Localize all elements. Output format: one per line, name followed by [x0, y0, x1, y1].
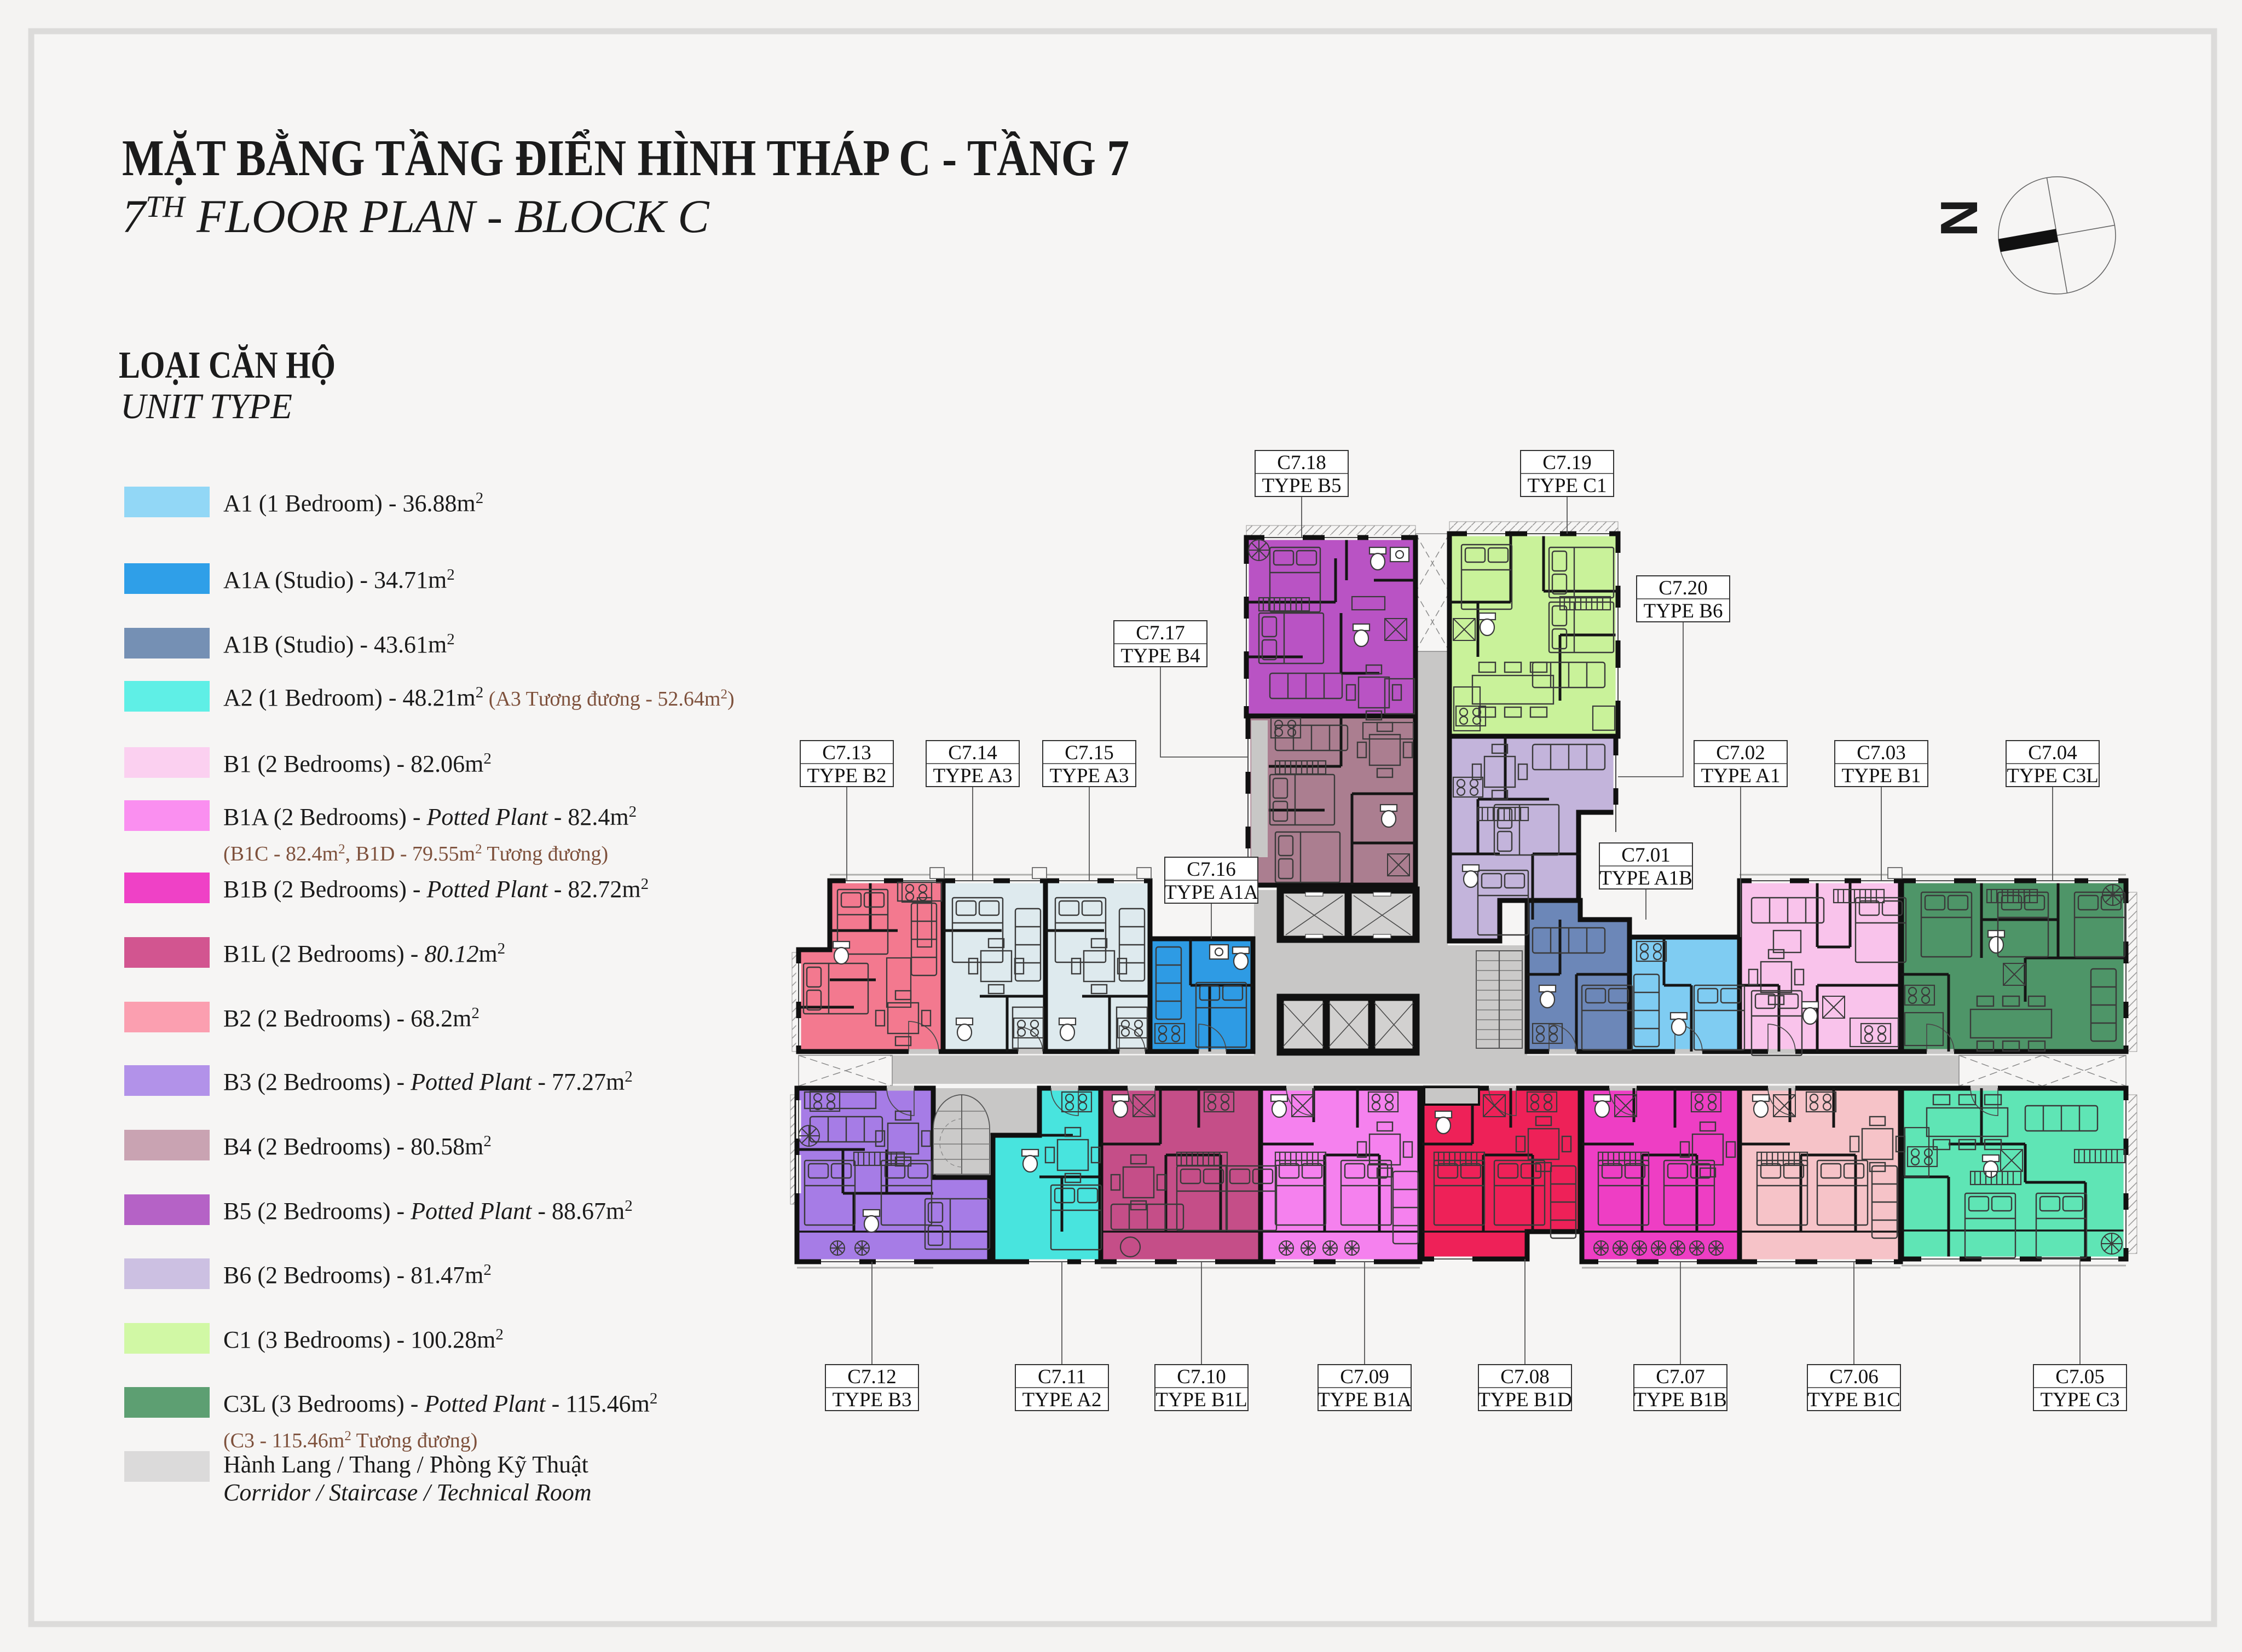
- svg-text:TYPE A3: TYPE A3: [933, 765, 1013, 787]
- svg-text:TYPE B3: TYPE B3: [833, 1389, 912, 1411]
- svg-text:C1 (3 Bedrooms) - 100.28m2: C1 (3 Bedrooms) - 100.28m2: [223, 1326, 504, 1353]
- svg-text:B2 (2 Bedrooms) - 68.2m2: B2 (2 Bedrooms) - 68.2m2: [223, 1004, 479, 1032]
- svg-text:MẶT BẰNG TẦNG ĐIỂN HÌNH THÁP C: MẶT BẰNG TẦNG ĐIỂN HÌNH THÁP C - TẦNG 7: [122, 130, 1129, 187]
- svg-text:A1 (1 Bedroom) - 36.88m2: A1 (1 Bedroom) - 36.88m2: [223, 489, 483, 517]
- svg-text:C7.20: C7.20: [1659, 577, 1707, 599]
- svg-text:B5 (2 Bedrooms) - Potted Plant: B5 (2 Bedrooms) - Potted Plant - 88.67m2: [223, 1197, 633, 1224]
- svg-text:TYPE B1B: TYPE B1B: [1634, 1389, 1727, 1411]
- svg-text:C7.04: C7.04: [2028, 742, 2077, 764]
- svg-text:C7.18: C7.18: [1277, 452, 1326, 474]
- svg-text:UNIT TYPE: UNIT TYPE: [120, 386, 292, 426]
- svg-text:TYPE B1L: TYPE B1L: [1155, 1389, 1247, 1411]
- svg-text:7TH FLOOR PLAN - BLOCK C: 7TH FLOOR PLAN - BLOCK C: [122, 190, 710, 242]
- svg-text:B3 (2 Bedrooms) - Potted Plant: B3 (2 Bedrooms) - Potted Plant - 77.27m2: [223, 1068, 633, 1095]
- svg-text:C7.02: C7.02: [1716, 742, 1765, 764]
- svg-text:TYPE A1B: TYPE A1B: [1599, 867, 1692, 889]
- svg-text:TYPE B1D: TYPE B1D: [1478, 1389, 1572, 1411]
- svg-text:C7.03: C7.03: [1857, 742, 1905, 764]
- svg-text:C7.14: C7.14: [948, 742, 997, 764]
- svg-text:LOẠI CĂN HỘ: LOẠI CĂN HỘ: [119, 344, 336, 386]
- svg-text:C7.17: C7.17: [1136, 622, 1184, 644]
- svg-text:C7.06: C7.06: [1829, 1366, 1878, 1388]
- svg-text:C7.12: C7.12: [847, 1366, 896, 1388]
- svg-text:TYPE A1: TYPE A1: [1701, 765, 1781, 787]
- svg-text:A1A (Studio) - 34.71m2: A1A (Studio) - 34.71m2: [223, 566, 455, 593]
- svg-text:A1B (Studio) - 43.61m2: A1B (Studio) - 43.61m2: [223, 631, 455, 658]
- svg-text:C7.15: C7.15: [1065, 742, 1113, 764]
- svg-text:TYPE B1C: TYPE B1C: [1807, 1389, 1900, 1411]
- svg-text:B1B (2 Bedrooms) - Potted Plan: B1B (2 Bedrooms) - Potted Plant - 82.72m…: [223, 875, 649, 903]
- svg-text:C7.01: C7.01: [1621, 844, 1670, 867]
- svg-text:TYPE C1: TYPE C1: [1528, 475, 1607, 497]
- svg-text:B4 (2 Bedrooms) - 80.58m2: B4 (2 Bedrooms) - 80.58m2: [223, 1133, 492, 1160]
- svg-text:TYPE A3: TYPE A3: [1050, 765, 1129, 787]
- svg-text:C7.19: C7.19: [1542, 452, 1591, 474]
- svg-text:C7.07: C7.07: [1656, 1366, 1704, 1388]
- svg-text:C7.11: C7.11: [1038, 1366, 1086, 1388]
- svg-text:TYPE B1: TYPE B1: [1842, 765, 1921, 787]
- svg-text:C7.08: C7.08: [1500, 1366, 1549, 1388]
- svg-text:TYPE B5: TYPE B5: [1262, 475, 1342, 497]
- svg-text:N: N: [1930, 199, 1989, 236]
- svg-text:TYPE B4: TYPE B4: [1121, 645, 1200, 667]
- svg-text:TYPE C3: TYPE C3: [2041, 1389, 2120, 1411]
- svg-text:C7.13: C7.13: [822, 742, 871, 764]
- svg-text:TYPE B1A: TYPE B1A: [1318, 1389, 1412, 1411]
- svg-text:B1A (2 Bedrooms) - Potted Plan: B1A (2 Bedrooms) - Potted Plant - 82.4m2: [223, 803, 637, 830]
- svg-text:TYPE B6: TYPE B6: [1644, 600, 1723, 622]
- svg-text:TYPE A2: TYPE A2: [1022, 1389, 1102, 1411]
- svg-text:(B1C - 82.4m2, B1D - 79.55m2 T: (B1C - 82.4m2, B1D - 79.55m2 Tương đương…: [223, 842, 608, 865]
- svg-text:C7.10: C7.10: [1177, 1366, 1226, 1388]
- svg-text:B1 (2 Bedrooms) - 82.06m2: B1 (2 Bedrooms) - 82.06m2: [223, 750, 492, 777]
- svg-text:B6 (2 Bedrooms) - 81.47m2: B6 (2 Bedrooms) - 81.47m2: [223, 1261, 492, 1289]
- svg-text:TYPE A1A: TYPE A1A: [1164, 881, 1258, 904]
- svg-text:Corridor / Staircase / Technic: Corridor / Staircase / Technical Room: [223, 1479, 592, 1506]
- svg-text:TYPE C3L: TYPE C3L: [2007, 765, 2099, 787]
- svg-text:Hành Lang / Thang / Phòng Kỹ T: Hành Lang / Thang / Phòng Kỹ Thuật: [223, 1451, 588, 1478]
- svg-text:C7.16: C7.16: [1187, 858, 1235, 881]
- svg-text:C7.09: C7.09: [1340, 1366, 1389, 1388]
- svg-text:C3L (3 Bedrooms) - Potted Plan: C3L (3 Bedrooms) - Potted Plant - 115.46…: [223, 1390, 657, 1417]
- svg-text:B1L (2 Bedrooms) - 80.12m2: B1L (2 Bedrooms) - 80.12m2: [223, 940, 505, 967]
- svg-text:TYPE B2: TYPE B2: [807, 765, 887, 787]
- svg-text:C7.05: C7.05: [2055, 1366, 2104, 1388]
